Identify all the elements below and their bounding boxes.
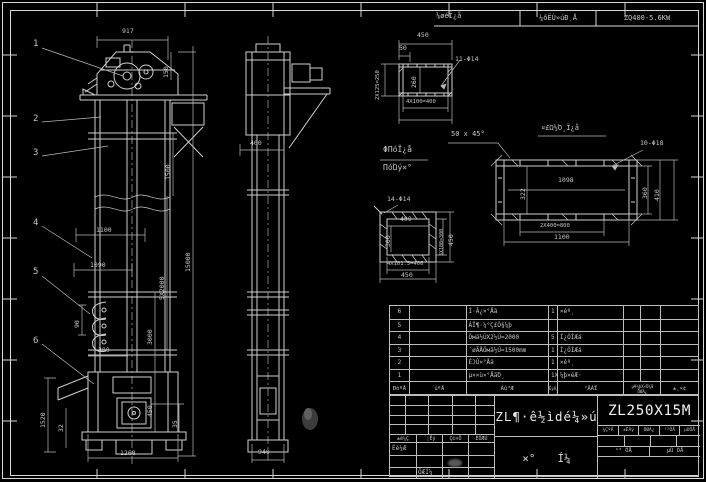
note-line2: ΠόΏý×° xyxy=(383,164,412,172)
dim-150: 150 xyxy=(163,66,170,78)
parts-list-row: 2ÉϽÚ×°Åä1×éº¸ xyxy=(390,356,698,369)
sheet-number: µÚ ÕÅ xyxy=(649,447,700,456)
dim-260: 260 xyxy=(411,76,418,88)
dim-300-sq: 300 xyxy=(385,235,392,247)
dim-4x1015: 4X101.5=406 xyxy=(387,262,423,268)
rev-label-count: ´¦Êý xyxy=(416,435,442,442)
parts-cell-extra6 xyxy=(640,306,660,319)
parts-list-header-row: ÐòºÅ ´úºÅ Ãû³Æ ÊýÁ¿ ²ÄÁÏ µ¥¼þX×Ü¼Æ ÖØÁ¿ … xyxy=(390,381,698,396)
parts-cell-remark xyxy=(660,320,698,332)
gearbox-label-cell: ¼õËÙ»úÐͺÅ xyxy=(520,10,596,26)
parts-cell-material: ×éº¸ xyxy=(557,357,624,369)
parts-cell-no: 4 xyxy=(390,332,409,344)
dim-5x2000: 5X2000 xyxy=(159,277,166,300)
parts-cell-qty: 1 xyxy=(548,345,557,357)
parts-cell-code xyxy=(409,357,466,369)
info-cell-2: ÖØÁ¿ xyxy=(638,426,659,435)
header-qty: ÊýÁ¿ xyxy=(548,382,557,396)
parts-list-row: 4Öмä½ÚX2½Ú=20005Í¿ÓÍÆá xyxy=(390,331,698,344)
parts-cell-qty: 1 xyxy=(548,357,557,369)
dim-450-sq-right: 450 xyxy=(448,234,455,246)
parts-cell-name: µ××ù×°ÅäΌ¸ xyxy=(466,370,548,382)
dim-400-sq: 400 xyxy=(400,216,412,223)
dim-1268: 1268 xyxy=(120,450,136,457)
cad-drawing-canvas: ⅛øéÏ¿å ¼õËÙ»úÐͺÅ ZQ400-5.6KW 12345691715… xyxy=(0,0,706,482)
dim-1100-part: 1100 xyxy=(554,234,570,241)
signature-grid: Éè¼Æ ÖÆÍ¼ xyxy=(390,442,494,478)
header-remark: ±¸×¢ xyxy=(660,382,698,396)
parts-cell-material: ¼þ×éÆ· xyxy=(557,370,624,382)
note-longpart: ¤£Ω½Ό¸Ï¿å xyxy=(541,125,579,132)
parts-cell-qty: 1 xyxy=(548,306,557,319)
dim-50-d1: 50 xyxy=(399,45,407,52)
sheet-total: ¹² ÕÅ xyxy=(598,447,649,456)
header-weight: µ¥¼þX×Ü¼Æ ÖØÁ¿ xyxy=(623,382,660,396)
dim-1090: 1090 xyxy=(90,262,106,269)
dim-1098: 1098 xyxy=(558,177,574,184)
scan-smudge-artifact xyxy=(302,408,318,430)
parts-cell-name: Í·Â¿×°Åä xyxy=(466,306,548,319)
parts-cell-no: 5 xyxy=(390,320,409,332)
parts-list-row: 1µ××ù×°ÅäΌ¸1X¼þ×éÆ· xyxy=(390,369,698,382)
parts-cell-remark xyxy=(660,306,698,319)
parts-cell-material: ×éº¸ xyxy=(557,306,624,319)
parts-cell-extra6 xyxy=(640,345,660,357)
dim-4x100: 4X100=400 xyxy=(406,100,436,106)
dim-1100: 1100 xyxy=(96,227,112,234)
title-block: ±ê¼Ç ´¦Êý Ç©×Ö ÈÕÆÚ Éè¼Æ ÖÆÍ¼ ZL¶·ê½ìdé¼… xyxy=(389,395,699,477)
dim-3x100: 3X100=300 xyxy=(440,229,445,256)
parts-cell-qty: 1X xyxy=(548,370,557,382)
parts-cell-code xyxy=(409,306,466,319)
header-name: Ãû³Æ xyxy=(466,382,548,396)
parts-cell-name: ÁÏ¶·¼°Ç£Ò§¼þ xyxy=(466,320,548,332)
dim-300: 300 xyxy=(98,347,110,354)
parts-cell-extra6 xyxy=(640,357,660,369)
parts-list-table: 6Í·Â¿×°Åä1×éº¸5ÁÏ¶·¼°Ç£Ò§¼þ4Öмä½ÚX2½Ú=20… xyxy=(389,305,699,395)
drawing-type-char-left: ×° xyxy=(522,452,535,465)
dim-90: 90 xyxy=(74,320,81,328)
info-cell-0: ¼ÇºÅ xyxy=(598,426,618,435)
dim-360: 360 xyxy=(642,187,649,199)
parts-cell-remark xyxy=(660,370,698,382)
parts-cell-code xyxy=(409,320,466,332)
dim-2x400: 2X400=800 xyxy=(540,224,570,230)
side-view-linework xyxy=(246,36,330,462)
header-weight-bottom: ÖØÁ¿ xyxy=(624,389,660,394)
parts-cell-code xyxy=(409,345,466,357)
dim-3000: 3000 xyxy=(147,329,154,345)
header-material: ²ÄÁÏ xyxy=(557,382,624,396)
parts-cell-remark xyxy=(660,357,698,369)
dim-940: 940 xyxy=(258,449,270,456)
parts-cell-name: ÉϽÚ×°Åä xyxy=(466,357,548,369)
parts-cell-no: 2 xyxy=(390,357,409,369)
model-designation: ZL250X15M xyxy=(597,396,701,425)
dim-1520: 1520 xyxy=(40,412,47,428)
parts-list-row: 3´øÃÅÖмä½Ú=1500mm1Í¿ÓÍÆá xyxy=(390,344,698,357)
parts-cell-no: 1 xyxy=(390,370,409,382)
rev-label-sign: Ç©×Ö xyxy=(442,435,468,442)
balloon-6: 6 xyxy=(33,337,38,346)
parts-cell-name: Öмä½ÚX2½Ú=2000 xyxy=(466,332,548,344)
parts-cell-qty: 5 xyxy=(548,332,557,344)
side-view-dimension-lines xyxy=(240,144,284,463)
revision-grid xyxy=(390,396,494,434)
dim-450-sq-bottom: 450 xyxy=(401,272,413,279)
gearbox-model-cell: ZQ400-5.6KW xyxy=(596,10,698,26)
parts-cell-extra6 xyxy=(640,332,660,344)
parts-cell-material: Í¿ÓÍÆá xyxy=(557,345,624,357)
label-chamfer: 50 x 45° xyxy=(451,131,485,138)
balloon-4: 4 xyxy=(33,219,38,228)
parts-cell-name: ´øÃÅÖмä½Ú=1500mm xyxy=(466,345,548,357)
draft-label: ÖÆÍ¼ xyxy=(418,469,432,477)
balloon-5: 5 xyxy=(33,268,38,277)
drawing-title: ZL¶·ê½ìdé¼»ú xyxy=(494,396,598,436)
sheet-row: ¹² ÕÅ µÚ ÕÅ xyxy=(597,446,700,456)
parts-cell-qty xyxy=(548,320,557,332)
rev-label-date: ÈÕÆÚ xyxy=(468,435,494,442)
dim-410: 410 xyxy=(654,189,661,201)
dim-450-d1: 450 xyxy=(417,32,429,39)
dim-400-side: 400 xyxy=(250,140,262,147)
parts-cell-extra5 xyxy=(623,320,640,332)
parts-cell-material: Í¿ÓÍÆá xyxy=(557,332,624,344)
parts-cell-remark xyxy=(660,332,698,344)
balloon-3: 3 xyxy=(33,149,38,158)
drawing-type-char-right: Í¼ xyxy=(558,452,571,465)
parts-cell-no: 3 xyxy=(390,345,409,357)
dim-32: 32 xyxy=(58,424,65,432)
parts-list-rows: 6Í·Â¿×°Åä1×éº¸5ÁÏ¶·¼°Ç£Ò§¼þ4Öмä½ÚX2½Ú=20… xyxy=(390,306,698,381)
header-no: ÐòºÅ xyxy=(390,382,409,396)
parts-cell-extra5 xyxy=(623,332,640,344)
parts-cell-extra5 xyxy=(623,370,640,382)
balloon-2: 2 xyxy=(33,115,38,124)
approval-empty-cell xyxy=(597,456,700,478)
dim-35: 35 xyxy=(172,420,179,428)
parts-cell-extra5 xyxy=(623,345,640,357)
parts-cell-remark xyxy=(660,345,698,357)
revision-label-row: ±ê¼Ç ´¦Êý Ç©×Ö ÈÕÆÚ xyxy=(390,434,494,442)
flange-detail-linework xyxy=(399,64,452,96)
signature-smudge xyxy=(448,459,462,467)
drawing-type-chars: ×° Í¼ xyxy=(494,436,598,479)
dim-450-front: 450 xyxy=(147,405,154,417)
casing-detail-dimension-lines xyxy=(504,150,678,246)
parts-cell-code xyxy=(409,370,466,382)
parts-cell-extra5 xyxy=(623,357,640,369)
balloon-1: 1 xyxy=(33,40,38,49)
header-code: ´úºÅ xyxy=(409,382,466,396)
parts-cell-extra6 xyxy=(640,320,660,332)
top-note-left: ⅛øéÏ¿å xyxy=(436,13,461,20)
parts-cell-extra6 xyxy=(640,370,660,382)
parts-cell-no: 6 xyxy=(390,306,409,319)
info-cell-3: ¹²ÕÅ xyxy=(659,426,679,435)
parts-cell-code xyxy=(409,332,466,344)
label-14-phi14: 14-Φ14 xyxy=(387,196,410,203)
info-cell-4: µÚÕÅ xyxy=(679,426,699,435)
dim-322: 322 xyxy=(520,188,527,200)
label-11-phi14: 11-Φ14 xyxy=(455,56,478,63)
designer-label: Éè¼Æ xyxy=(392,445,406,453)
empty-cell-row xyxy=(597,435,700,446)
dim-917: 917 xyxy=(122,28,134,35)
parts-list-row: 5ÁÏ¶·¼°Ç£Ò§¼þ xyxy=(390,319,698,332)
label-10-phi18: 10-Φ18 xyxy=(640,140,663,147)
info-cell-1: ±ÈÀý xyxy=(618,426,638,435)
rev-label-mark: ±ê¼Ç xyxy=(390,435,416,442)
info-cell-row: ¼ÇºÅ ±ÈÀý ÖØÁ¿ ¹²ÕÅ µÚÕÅ xyxy=(597,425,700,435)
dim-1500: 1500 xyxy=(165,164,172,180)
dim-2x125: 2X125=250 xyxy=(376,70,382,100)
parts-cell-extra5 xyxy=(623,306,640,319)
dim-15000: 15000 xyxy=(185,252,192,272)
note-line1: ΦΠóΪ¿å xyxy=(383,146,412,154)
annotation-leader-lines xyxy=(380,136,606,213)
parts-list-row: 6Í·Â¿×°Åä1×éº¸ xyxy=(390,306,698,319)
parts-cell-material xyxy=(557,320,624,332)
